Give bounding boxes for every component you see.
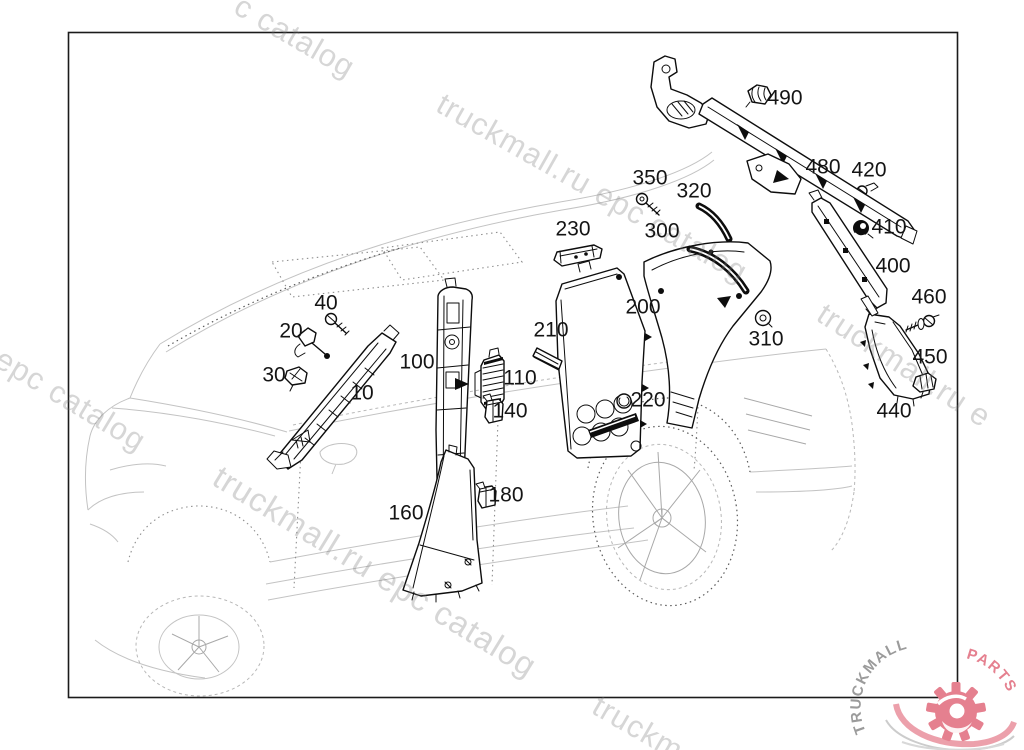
part-callout-20[interactable]: 20 bbox=[279, 321, 302, 342]
part-100-b-pillar-upper-trim bbox=[436, 278, 472, 551]
part-callout-10[interactable]: 10 bbox=[350, 383, 373, 404]
logo-swoosh-gray-2 bbox=[902, 742, 1004, 750]
part-callout-450[interactable]: 450 bbox=[912, 347, 947, 368]
truckmall-logo: TRUCKMALL PARTS bbox=[847, 636, 1020, 750]
logo-swoosh-gray-1 bbox=[886, 720, 1014, 750]
part-callout-210[interactable]: 210 bbox=[533, 320, 568, 341]
part-410-grommet bbox=[853, 220, 873, 238]
part-callout-100[interactable]: 100 bbox=[399, 352, 434, 373]
part-callout-230[interactable]: 230 bbox=[555, 219, 590, 240]
part-callout-350[interactable]: 350 bbox=[632, 168, 667, 189]
part-310-grommet bbox=[756, 311, 773, 328]
part-450-clip bbox=[913, 373, 936, 398]
logo-brand-arc: TRUCKMALL bbox=[847, 636, 909, 737]
part-callout-layer: 1020304010011014016018020021022023030031… bbox=[0, 0, 1024, 750]
diagram-border bbox=[69, 33, 958, 698]
part-460-screw bbox=[906, 315, 939, 332]
part-320-strip bbox=[699, 206, 729, 239]
part-40-screw bbox=[326, 314, 350, 336]
part-callout-490[interactable]: 490 bbox=[767, 88, 802, 109]
watermark-3: l epc catalog bbox=[0, 332, 152, 459]
part-callout-140[interactable]: 140 bbox=[492, 401, 527, 422]
logo-swoosh-pink bbox=[896, 704, 1014, 744]
part-callout-460[interactable]: 460 bbox=[911, 287, 946, 308]
part-callout-480[interactable]: 480 bbox=[805, 157, 840, 178]
part-callout-200[interactable]: 200 bbox=[625, 297, 660, 318]
part-350-screw bbox=[637, 194, 661, 216]
part-callout-160[interactable]: 160 bbox=[388, 503, 423, 524]
watermark-1: c catalog bbox=[228, 0, 361, 86]
part-220-grommet bbox=[617, 394, 631, 408]
part-callout-40[interactable]: 40 bbox=[314, 293, 337, 314]
part-callout-180[interactable]: 180 bbox=[488, 485, 523, 506]
part-callout-440[interactable]: 440 bbox=[876, 401, 911, 422]
part-200-c-pillar-trim bbox=[556, 261, 652, 458]
part-10-a-pillar-trim bbox=[267, 325, 399, 469]
car-body-sketch bbox=[86, 152, 856, 696]
gear-icon bbox=[926, 682, 987, 742]
logo-suffix-arc: PARTS bbox=[965, 646, 1020, 696]
parts-diagram-page: TRUCKMALL PARTS c catalogtruckmall.ru ep… bbox=[0, 0, 1024, 750]
part-230-rail-piece bbox=[554, 245, 602, 266]
part-420-screw bbox=[844, 183, 878, 199]
part-callout-410[interactable]: 410 bbox=[871, 217, 906, 238]
part-30-clip bbox=[285, 367, 307, 391]
watermark-6: truckm bbox=[586, 688, 690, 750]
part-callout-310[interactable]: 310 bbox=[748, 329, 783, 350]
part-callout-320[interactable]: 320 bbox=[676, 181, 711, 202]
part-callout-220[interactable]: 220 bbox=[630, 390, 665, 411]
part-callout-420[interactable]: 420 bbox=[851, 160, 886, 181]
part-callout-400[interactable]: 400 bbox=[875, 256, 910, 277]
part-400-d-pillar-strip bbox=[809, 190, 887, 316]
part-callout-110[interactable]: 110 bbox=[503, 368, 536, 389]
part-210-strip bbox=[533, 348, 562, 370]
part-callout-30[interactable]: 30 bbox=[262, 365, 285, 386]
part-callout-300[interactable]: 300 bbox=[644, 221, 679, 242]
